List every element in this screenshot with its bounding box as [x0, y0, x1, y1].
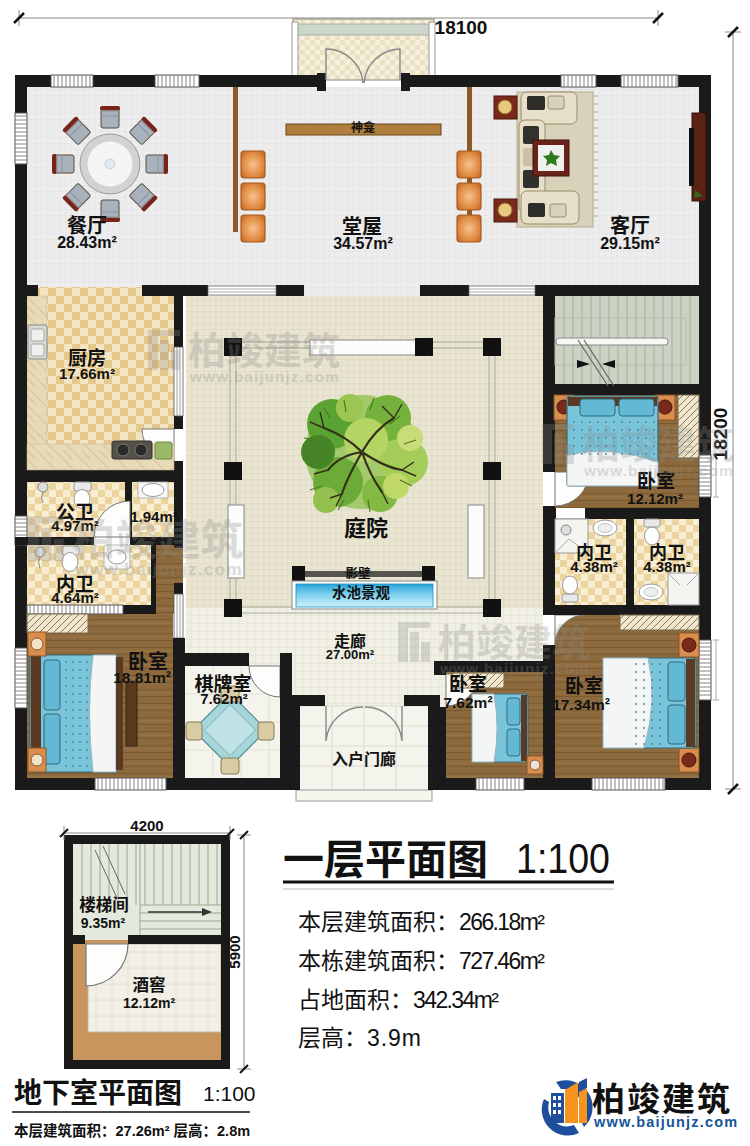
svg-text:本栋建筑面积：727.46m²: 本栋建筑面积：727.46m² — [298, 942, 545, 976]
svg-text:www.baijunjz.com: www.baijunjz.com — [189, 368, 340, 385]
svg-text:5900: 5900 — [226, 935, 243, 968]
svg-text:柏竣建筑: 柏竣建筑 — [73, 506, 243, 567]
svg-text:地下室平面图: 地下室平面图 — [14, 1071, 182, 1111]
svg-text:柏竣建筑: 柏竣建筑 — [438, 612, 590, 667]
svg-text:占地面积：342.34m²: 占地面积：342.34m² — [298, 981, 499, 1015]
svg-text:1:100: 1:100 — [516, 835, 610, 882]
svg-text:层高：3.9m: 层高：3.9m — [298, 1019, 421, 1053]
svg-text:影壁: 影壁 — [345, 563, 371, 582]
svg-text:34.57m²: 34.57m² — [333, 235, 393, 252]
svg-text:www.baijunjz.com: www.baijunjz.com — [593, 1114, 738, 1130]
svg-text:柏竣建筑: 柏竣建筑 — [188, 320, 340, 375]
svg-text:12.12m²: 12.12m² — [627, 490, 683, 507]
svg-text:4.38m²: 4.38m² — [643, 558, 691, 575]
svg-text:18100: 18100 — [435, 17, 488, 38]
svg-text:www.baijunjz.com: www.baijunjz.com — [583, 462, 734, 479]
svg-text:9.35m²: 9.35m² — [81, 915, 126, 931]
svg-text:28.43m²: 28.43m² — [57, 234, 117, 251]
svg-text:29.15m²: 29.15m² — [600, 235, 660, 252]
svg-text:楼梯间: 楼梯间 — [79, 892, 129, 916]
svg-text:7.62m²: 7.62m² — [200, 690, 248, 707]
svg-text:本层建筑面积：266.18m²: 本层建筑面积：266.18m² — [298, 903, 545, 937]
svg-text:酒窖: 酒窖 — [133, 972, 166, 996]
svg-text:4200: 4200 — [130, 817, 163, 834]
svg-text:www.baijunjz.com: www.baijunjz.com — [74, 559, 243, 579]
svg-text:7.62m²: 7.62m² — [443, 694, 492, 711]
svg-text:1:100: 1:100 — [203, 1082, 256, 1105]
svg-text:18.81m²: 18.81m² — [113, 669, 171, 686]
svg-text:27.00m²: 27.00m² — [326, 647, 375, 662]
svg-text:17.66m²: 17.66m² — [59, 365, 115, 382]
svg-text:17.34m²: 17.34m² — [552, 696, 610, 713]
svg-text:水池景观: 水池景观 — [332, 581, 390, 602]
svg-text:神龛: 神龛 — [351, 118, 375, 135]
svg-text:www.baijunjz.com: www.baijunjz.com — [439, 660, 590, 677]
svg-text:庭院: 庭院 — [344, 510, 388, 542]
svg-text:4.38m²: 4.38m² — [570, 558, 618, 575]
svg-text:本层建筑面积：27.26m² 层高：2.8m: 本层建筑面积：27.26m² 层高：2.8m — [14, 1119, 250, 1140]
svg-text:柏竣建筑: 柏竣建筑 — [582, 414, 734, 469]
svg-text:入户门廊: 入户门廊 — [332, 746, 396, 770]
svg-text:4.64m²: 4.64m² — [51, 589, 99, 606]
svg-text:一层平面图: 一层平面图 — [283, 826, 488, 886]
svg-text:12.12m²: 12.12m² — [123, 995, 175, 1011]
